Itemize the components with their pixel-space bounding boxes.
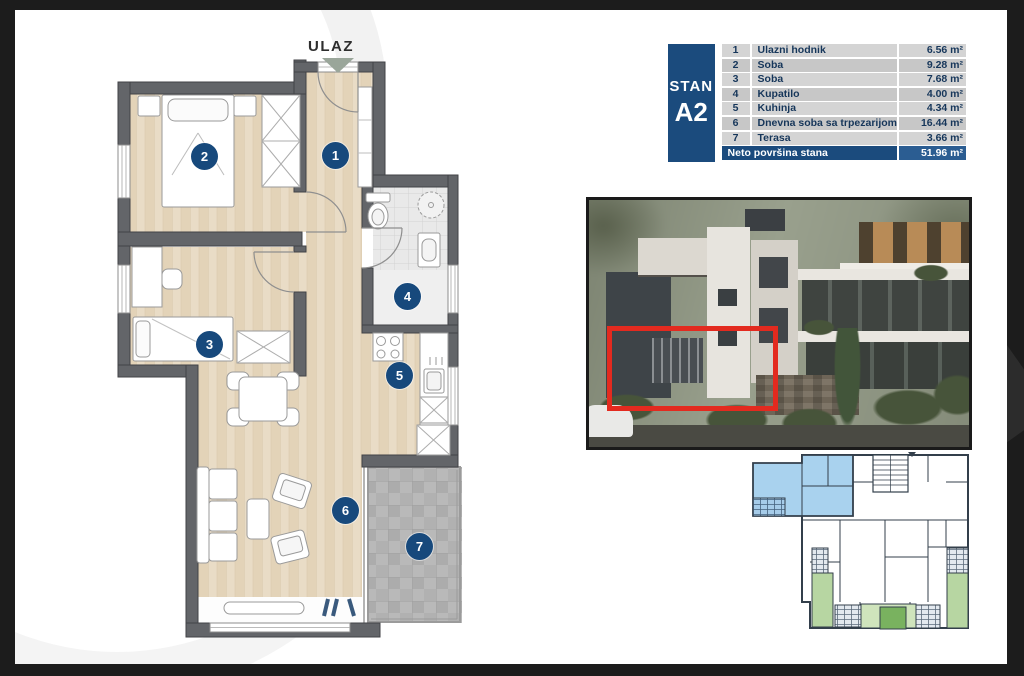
table-row: 2 Soba 9.28 m²: [722, 59, 966, 72]
table-row: 3 Soba 7.68 m²: [722, 73, 966, 86]
total-area-value: 51.96 m²: [897, 146, 966, 160]
room-badge-7: 7: [406, 533, 433, 560]
room-area-table: 1 Ulazni hodnik 6.56 m² 2 Soba 9.28 m² 3…: [722, 44, 966, 162]
render-upper-balcony: [638, 238, 714, 277]
render-ground: [589, 425, 969, 447]
table-row: 6 Dnevna soba sa trpezarijom 16.44 m²: [722, 117, 966, 130]
room-badge-4: 4: [394, 283, 421, 310]
document-sheet: ULAZ 1 2 3 4 5 6 7 STAN A2 1 Ulazni hodn…: [15, 10, 1007, 664]
render-bush: [931, 373, 972, 417]
unit-label-stan: STAN: [669, 78, 713, 95]
room-badge-6: 6: [332, 497, 359, 524]
key-plan-drawing: [750, 452, 972, 634]
apartment-highlight-box: [607, 326, 779, 411]
render-balcony-plant: [802, 319, 836, 336]
hall-closet: [358, 87, 372, 187]
area-legend: STAN A2 1 Ulazni hodnik 6.56 m² 2 Soba 9…: [668, 44, 966, 162]
render-balcony-plant: [912, 264, 950, 281]
unit-terrace-hatch: [753, 498, 785, 516]
total-label: Neto površina stana: [722, 146, 897, 160]
room-badge-3: 3: [196, 331, 223, 358]
table-row: 4 Kupatilo 4.00 m²: [722, 88, 966, 101]
room-badge-1: 1: [322, 142, 349, 169]
room-badge-2: 2: [191, 143, 218, 170]
page-background: { "plan": { "entrance_label": "ULAZ", "r…: [0, 0, 1024, 676]
render-roof-box: [745, 209, 785, 231]
entrance-arrow-icon: [322, 58, 354, 73]
table-row: 7 Terasa 3.66 m²: [722, 132, 966, 145]
entrance-label: ULAZ: [308, 38, 398, 55]
render-window: [718, 289, 737, 306]
table-total-row: Neto površina stana 51.96 m²: [722, 146, 966, 160]
table-row: 5 Kuhinja 4.34 m²: [722, 102, 966, 115]
render-window: [759, 257, 788, 289]
unit-label-a2: A2: [675, 97, 708, 128]
room-badge-5: 5: [386, 362, 413, 389]
unit-label-box: STAN A2: [668, 44, 715, 162]
building-render-photo: [586, 197, 972, 450]
table-row: 1 Ulazni hodnik 6.56 m²: [722, 44, 966, 57]
